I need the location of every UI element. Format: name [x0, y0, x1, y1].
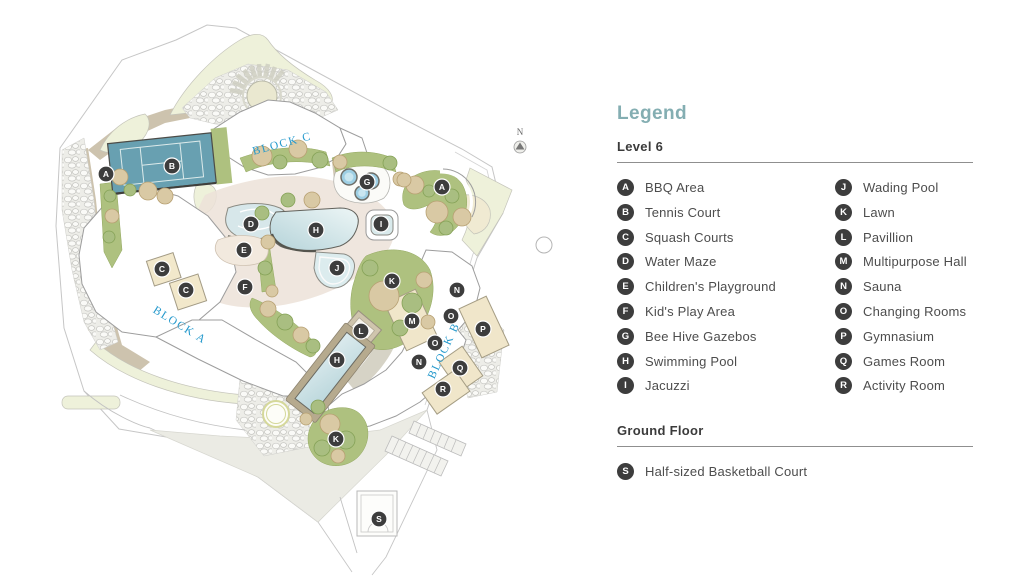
legend-item: I Jacuzzi: [617, 377, 835, 394]
map-marker: B: [164, 158, 180, 174]
amenity-badge: I: [617, 377, 634, 394]
map-marker: Q: [452, 360, 468, 376]
map-marker: O: [427, 335, 443, 351]
amenity-badge: P: [835, 328, 852, 345]
legend-item: B Tennis Court: [617, 204, 835, 221]
map-marker: A: [98, 166, 114, 182]
svg-text:O: O: [448, 311, 455, 321]
map-marker: E: [236, 242, 252, 258]
map-marker: N: [411, 354, 427, 370]
amenity-label: Activity Room: [863, 378, 945, 393]
legend-item: H Swimming Pool: [617, 353, 835, 370]
amenity-badge: L: [835, 229, 852, 246]
map-marker: M: [404, 313, 420, 329]
svg-text:C: C: [159, 264, 165, 274]
svg-text:B: B: [169, 161, 175, 171]
svg-text:K: K: [389, 276, 396, 286]
legend-item: J Wading Pool: [835, 179, 973, 196]
svg-text:S: S: [376, 514, 382, 524]
svg-text:Q: Q: [457, 363, 464, 373]
svg-text:K: K: [333, 434, 340, 444]
amenity-badge: B: [617, 204, 634, 221]
amenity-label: Pavillion: [863, 230, 913, 245]
map-marker: D: [243, 216, 259, 232]
legend-section: Level 6 A BBQ Area B Tennis Court C Squa…: [617, 139, 973, 394]
amenity-label: Changing Rooms: [863, 304, 966, 319]
amenity-label: Tennis Court: [645, 205, 720, 220]
north-compass-icon: N: [514, 127, 526, 153]
legend-items: S Half-sized Basketball Court: [617, 463, 973, 480]
amenity-label: BBQ Area: [645, 180, 704, 195]
legend-item: C Squash Courts: [617, 229, 835, 246]
map-marker: I: [373, 216, 389, 232]
svg-text:N: N: [517, 127, 524, 137]
svg-text:F: F: [242, 282, 247, 292]
amenity-badge: R: [835, 377, 852, 394]
amenity-label: Half-sized Basketball Court: [645, 464, 807, 479]
svg-text:A: A: [103, 169, 109, 179]
legend-item: M Multipurpose Hall: [835, 253, 973, 270]
amenity-label: Multipurpose Hall: [863, 254, 967, 269]
legend-item: D Water Maze: [617, 253, 835, 270]
amenity-label: Jacuzzi: [645, 378, 690, 393]
amenity-label: Sauna: [863, 279, 902, 294]
map-marker: C: [154, 261, 170, 277]
map-marker: G: [359, 174, 375, 190]
legend-item: K Lawn: [835, 204, 973, 221]
svg-text:D: D: [248, 219, 254, 229]
map-marker: H: [329, 352, 345, 368]
legend-items: A BBQ Area B Tennis Court C Squash Court…: [617, 179, 973, 394]
amenity-badge: C: [617, 229, 634, 246]
map-marker: H: [308, 222, 324, 238]
amenity-badge: Q: [835, 353, 852, 370]
map-marker: R: [435, 381, 451, 397]
legend-item: Q Games Room: [835, 353, 973, 370]
amenity-badge: K: [835, 204, 852, 221]
svg-text:H: H: [313, 225, 319, 235]
legend-item: L Pavillion: [835, 229, 973, 246]
page: N BLOCK CBLOCK ABLOCK B ABAGDIHEJCKFCNOM…: [0, 0, 1024, 578]
svg-text:E: E: [241, 245, 247, 255]
map-marker: K: [384, 273, 400, 289]
amenity-label: Swimming Pool: [645, 354, 737, 369]
amenity-label: Children's Playground: [645, 279, 776, 294]
water-tank: [536, 237, 552, 253]
amenity-label: Wading Pool: [863, 180, 938, 195]
legend-item: F Kid's Play Area: [617, 303, 835, 320]
legend-item: S Half-sized Basketball Court: [617, 463, 973, 480]
site-map: N BLOCK CBLOCK ABLOCK B ABAGDIHEJCKFCNOM…: [0, 0, 610, 578]
map-marker: N: [449, 282, 465, 298]
amenity-label: Squash Courts: [645, 230, 734, 245]
amenity-badge: F: [617, 303, 634, 320]
svg-text:P: P: [480, 324, 486, 334]
legend-title: Legend: [617, 103, 973, 125]
svg-text:C: C: [183, 285, 189, 295]
map-marker: O: [443, 308, 459, 324]
amenity-label: Kid's Play Area: [645, 304, 735, 319]
amenity-badge: O: [835, 303, 852, 320]
svg-text:H: H: [334, 355, 340, 365]
amenity-badge: N: [835, 278, 852, 295]
map-marker: F: [237, 279, 253, 295]
svg-text:R: R: [440, 384, 446, 394]
map-marker: A: [434, 179, 450, 195]
legend-item: O Changing Rooms: [835, 303, 973, 320]
legend-section-title: Ground Floor: [617, 423, 973, 447]
svg-text:N: N: [416, 357, 422, 367]
map-marker: K: [328, 431, 344, 447]
svg-text:I: I: [380, 219, 382, 229]
amenity-label: Lawn: [863, 205, 895, 220]
legend-item: R Activity Room: [835, 377, 973, 394]
amenity-badge: M: [835, 253, 852, 270]
legend-section: Ground Floor S Half-sized Basketball Cou…: [617, 423, 973, 480]
svg-text:G: G: [364, 177, 371, 187]
amenity-label: Bee Hive Gazebos: [645, 329, 757, 344]
amenity-badge: G: [617, 328, 634, 345]
legend-item: A BBQ Area: [617, 179, 835, 196]
legend-section-title: Level 6: [617, 139, 973, 163]
amenity-label: Games Room: [863, 354, 945, 369]
legend-item: P Gymnasium: [835, 328, 973, 345]
svg-text:N: N: [454, 285, 460, 295]
map-marker: J: [329, 260, 345, 276]
legend-panel: Legend Level 6 A BBQ Area B Tennis Court…: [617, 103, 973, 480]
map-marker: C: [178, 282, 194, 298]
site-plan: N BLOCK CBLOCK ABLOCK B ABAGDIHEJCKFCNOM…: [0, 0, 610, 578]
svg-text:A: A: [439, 182, 445, 192]
amenity-label: Gymnasium: [863, 329, 934, 344]
amenity-badge: A: [617, 179, 634, 196]
svg-text:O: O: [432, 338, 439, 348]
map-marker: S: [371, 511, 387, 527]
legend-item: E Children's Playground: [617, 278, 835, 295]
map-marker: L: [353, 323, 369, 339]
legend-item: N Sauna: [835, 278, 973, 295]
amenity-badge: S: [617, 463, 634, 480]
map-marker: P: [475, 321, 491, 337]
amenity-label: Water Maze: [645, 254, 717, 269]
legend-item: G Bee Hive Gazebos: [617, 328, 835, 345]
amenity-badge: H: [617, 353, 634, 370]
amenity-badge: D: [617, 253, 634, 270]
svg-text:J: J: [335, 263, 340, 273]
amenity-badge: J: [835, 179, 852, 196]
amenity-badge: E: [617, 278, 634, 295]
svg-text:M: M: [408, 316, 415, 326]
svg-text:L: L: [358, 326, 363, 336]
